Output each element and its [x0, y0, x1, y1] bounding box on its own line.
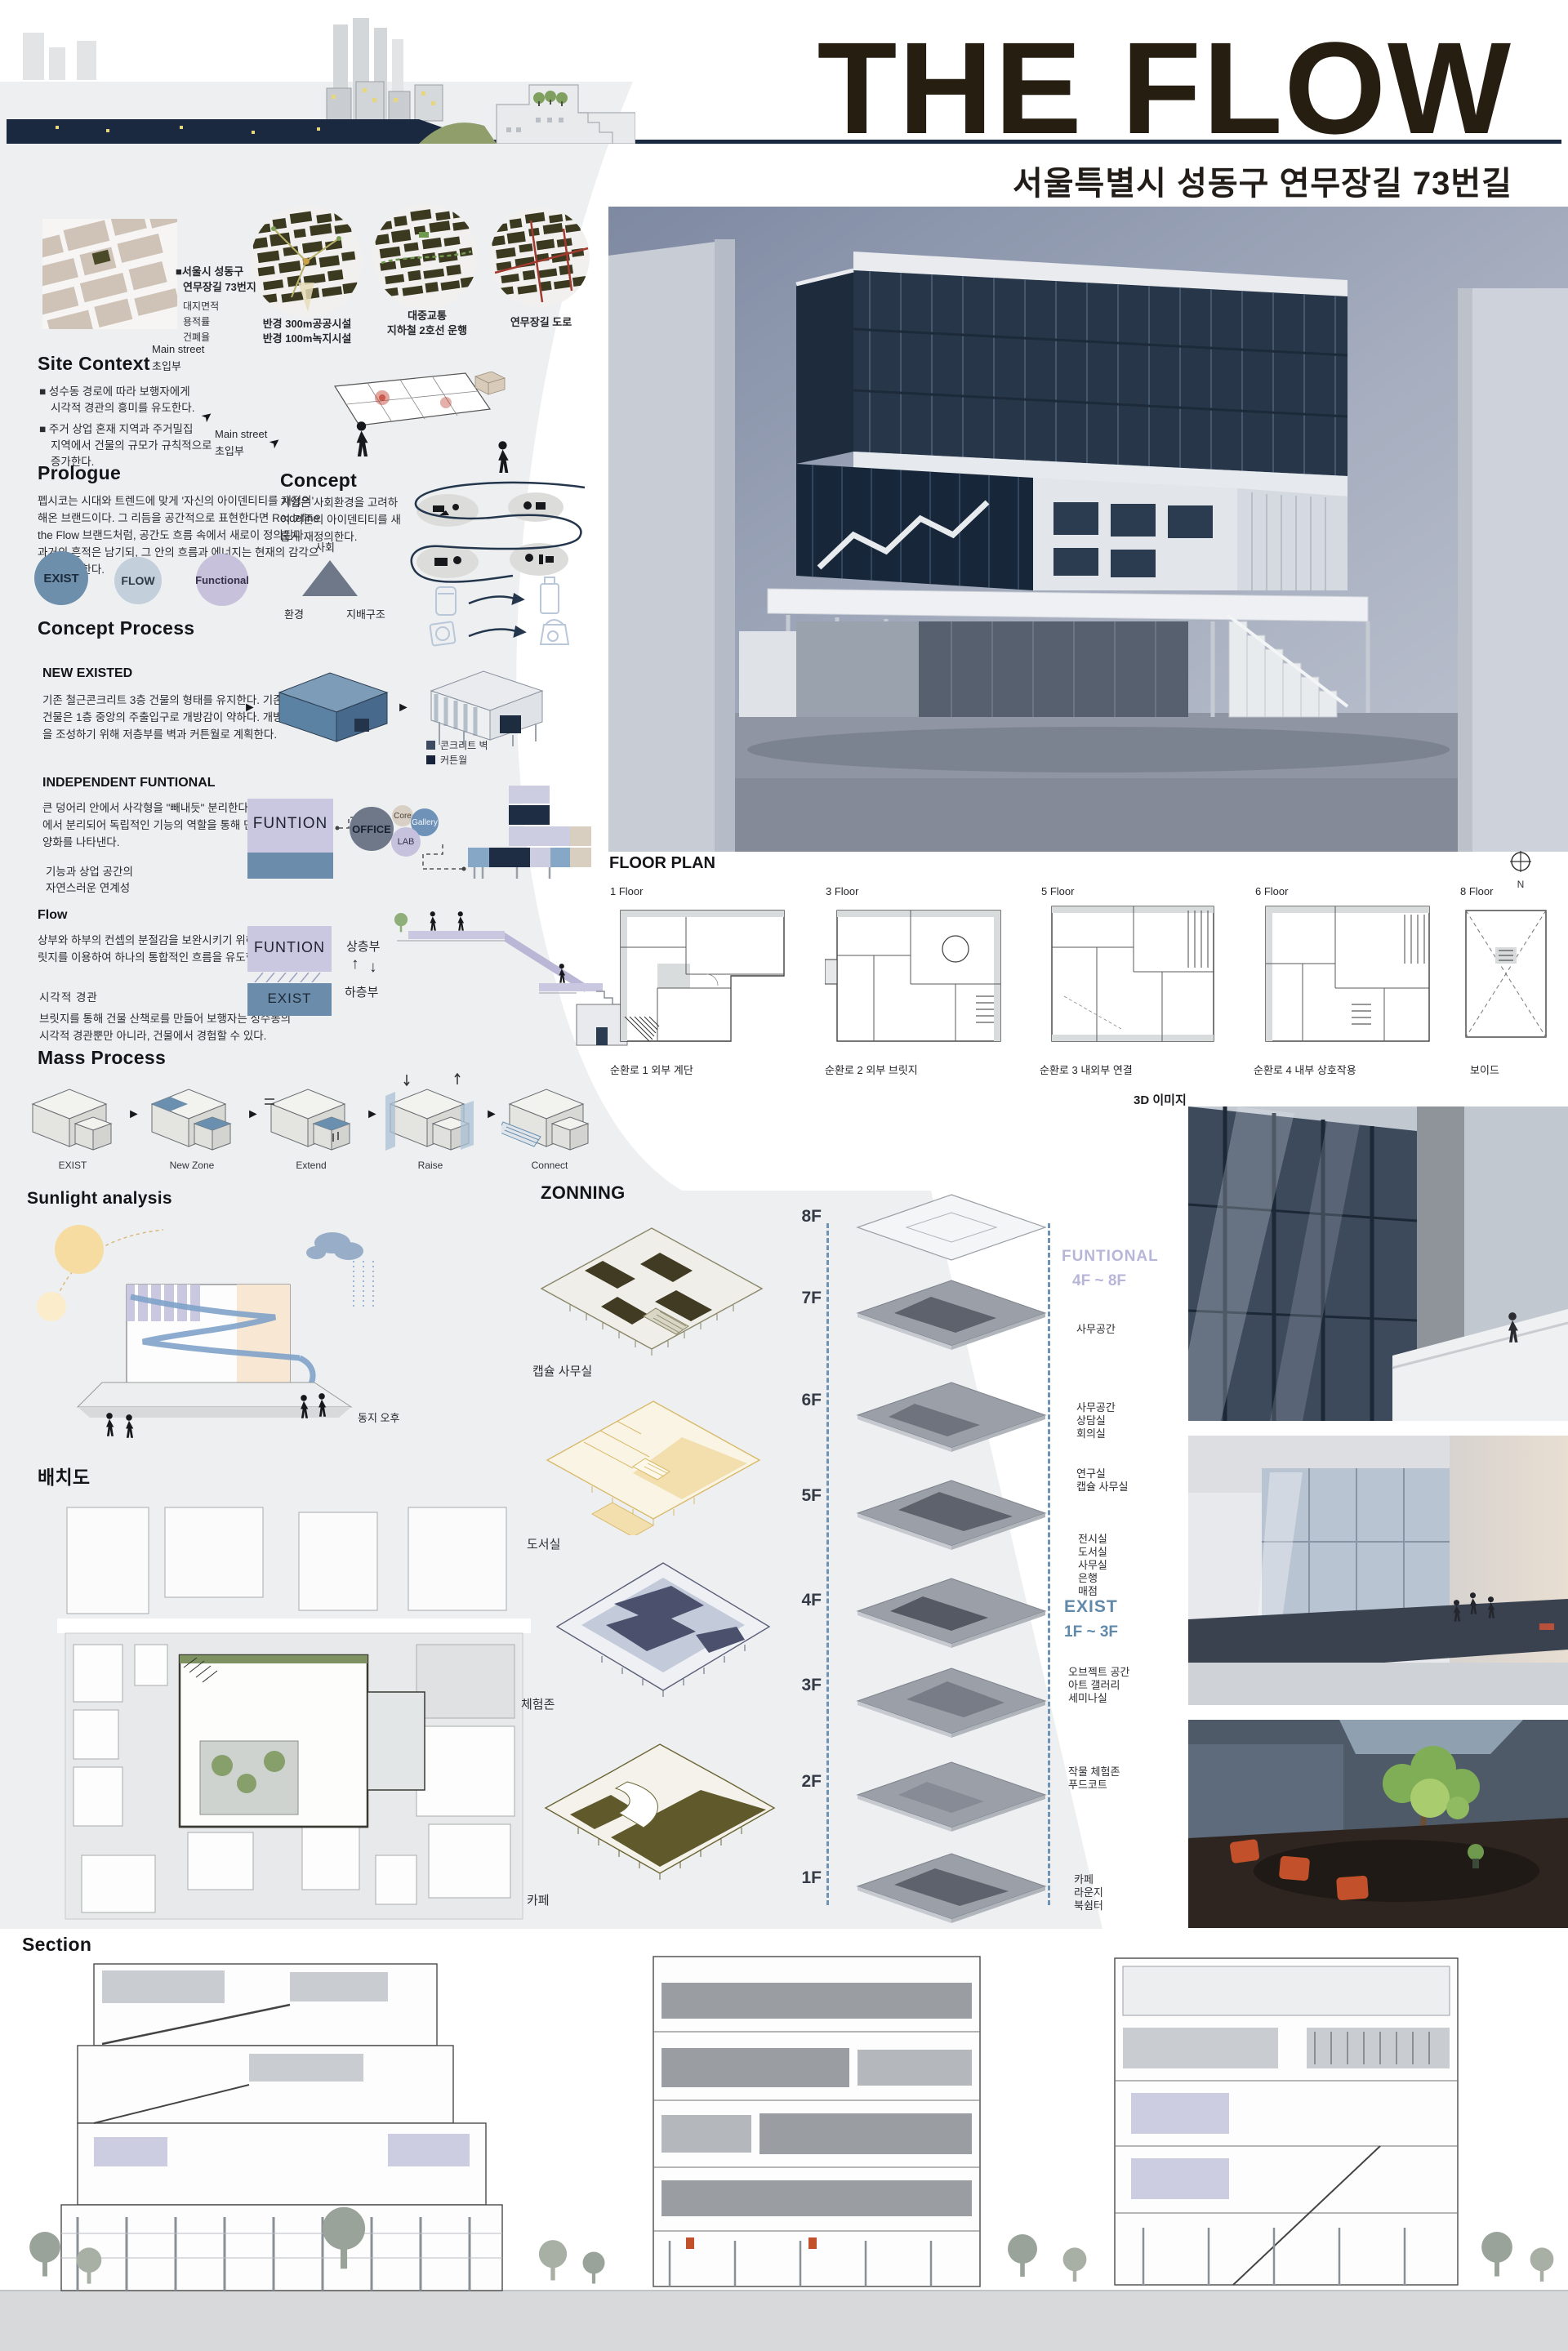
esg-environment-label: 환경: [284, 606, 304, 621]
stack-label-5f: 5F: [786, 1486, 822, 1506]
mass-label-newzone: New Zone: [144, 1160, 240, 1171]
legend-concrete-wall: 콘크리트 벽: [426, 738, 488, 752]
independent-body2-line2: 자연스러운 연계성: [46, 880, 130, 897]
stack-label-6f: 6F: [786, 1391, 822, 1410]
stack-label-1f: 1F: [786, 1868, 822, 1888]
section-drawing-1: [45, 1956, 535, 2292]
independent-funtional-heading: INDEPENDENT FUNTIONAL: [42, 776, 216, 790]
plan-3f-drawing: [825, 898, 1013, 1053]
mass-step-exist: [24, 1071, 121, 1153]
mass-arrow2-icon: ►: [247, 1107, 260, 1122]
street-grid-diagram: [278, 372, 523, 470]
board-subtitle: 서울특별시 성동구 연무장길 73번길: [696, 157, 1512, 204]
flow-exist-box: EXIST: [247, 983, 332, 1016]
main-street2-line1: Main street: [215, 428, 267, 440]
funtion-label: FUNTION: [247, 815, 333, 833]
section-drawing-2: [637, 1950, 996, 2293]
section-heading: Section: [22, 1934, 91, 1956]
existing-building-axon: [263, 658, 394, 746]
process-arrow1-icon: ►: [243, 701, 256, 715]
main-street2-line2: 초입부: [215, 443, 244, 458]
render-facade-image: [1188, 1106, 1568, 1421]
render-cafe-tree-image: [1188, 1720, 1568, 1928]
funtional-range-floors: 4F ~ 8F: [1072, 1272, 1126, 1290]
radius-analysis-map: [249, 204, 363, 318]
funtional-range-title: FUNTIONAL: [1062, 1248, 1159, 1266]
flow-body2: 브릿지를 통해 건물 산책로를 만들어 보행자는 성수동의 시각적 경관뿐만 아…: [39, 1011, 301, 1045]
plan-6f-drawing: [1254, 898, 1441, 1053]
exist-range-title: EXIST: [1064, 1597, 1118, 1617]
stack-guide-line-left: [826, 1223, 829, 1905]
hero-3d-render: [608, 207, 1568, 852]
main-street-label-line1: Main street: [152, 343, 204, 355]
plan-caption-5: 보이드: [1470, 1062, 1499, 1077]
zone-axon-office: [513, 1210, 774, 1365]
flow-funtion-box: FUNTION: [247, 926, 332, 972]
stack-slab-4f: [849, 1572, 1053, 1654]
curtain-wall-swatch: [426, 755, 435, 764]
radius-map-caption: 반경 300m공공시설 반경 100m녹지시설: [242, 317, 372, 345]
stack-slab-1f: [849, 1847, 1053, 1929]
independent-body2-line1: 기능과 상업 공간의: [46, 864, 133, 881]
transit-analysis-map: [372, 203, 479, 310]
funtional-elevation-diagram: [468, 781, 595, 880]
site-address-line2: 연무장길 73번지: [183, 278, 256, 294]
zone-axon-experience: [549, 1553, 777, 1700]
concept-body: 기업은 사회환경을 고려하여 기존의 아이덴티티를 새롭게 재정의한다.: [280, 495, 403, 546]
esg-governance-label: 지배구조: [346, 606, 385, 621]
mass-label-extend: Extend: [263, 1160, 359, 1171]
header-skyline-illustration: [7, 7, 635, 144]
floor-label-1: 1 Floor: [610, 885, 643, 897]
lower-floors-label: 하층부: [345, 983, 378, 1000]
pedestrian2-icon: [495, 441, 513, 477]
mass-step-extend: [263, 1071, 359, 1153]
up-arrow-icon: ↑: [351, 955, 359, 973]
flow-ramp-diagram: [390, 905, 635, 1064]
concept-heading: Concept: [280, 470, 357, 492]
exist-range-floors: 1F ~ 3F: [1064, 1623, 1118, 1641]
pedestrian-icon: [353, 421, 372, 461]
zone-axon-cafe: [537, 1733, 782, 1896]
floorplan-heading: FLOOR PLAN: [609, 854, 715, 873]
north-compass-icon: [1507, 849, 1535, 877]
mass-label-exist: EXIST: [24, 1160, 121, 1171]
road-map-caption: 연무장길 도로: [482, 314, 600, 329]
plan-8f-drawing: [1459, 898, 1553, 1053]
plan-5f-drawing: [1040, 898, 1226, 1053]
floor-label-5: 5 Floor: [1041, 885, 1074, 897]
site-location-map: [42, 219, 177, 329]
funtion-mass-diagram: FUNTION: [247, 799, 333, 879]
concept-process-heading: Concept Process: [38, 617, 194, 639]
transit-map-caption: 대중교통 지하철 2호선 운행: [366, 309, 488, 337]
upper-floors-label: 상층부: [346, 937, 380, 955]
stack-slab-5f: [849, 1474, 1053, 1556]
esg-triangle: [302, 560, 358, 596]
mass-label-connect: Connect: [501, 1160, 598, 1171]
site-address-line1: ■서울시 성동구: [176, 263, 243, 278]
mass-step-raise: [382, 1071, 479, 1153]
gallery-elevation-connector: [418, 841, 469, 875]
new-existed-heading: NEW EXISTED: [42, 666, 132, 681]
board-title: THE FLOW: [696, 23, 1512, 154]
annotation-5f: 전시실도서실사무실은행매점: [1078, 1533, 1107, 1598]
site-metric-1: 대지면적: [183, 299, 219, 313]
annotation-7f: 사무공간상담실회의실: [1076, 1401, 1116, 1440]
annotation-2f: 작물 체험존푸드코트: [1068, 1765, 1120, 1792]
sunlight-diagram: [29, 1207, 380, 1452]
plan-caption-1: 순환로 1 외부 계단: [610, 1062, 693, 1077]
site-context-heading: Site Context: [38, 353, 150, 375]
section-drawing-3: [1102, 1950, 1470, 2293]
plan-1f-drawing: [608, 898, 796, 1053]
section-tree-9: [1529, 2236, 1557, 2293]
zone-label-experience: 체험존: [521, 1695, 555, 1712]
floor-label-8: 8 Floor: [1460, 885, 1493, 897]
section-tree-1: [28, 2215, 64, 2293]
winter-afternoon-label: 동지 오후: [358, 1409, 399, 1425]
presentation-board: THE FLOW 서울특별시 성동구 연무장길 73번길 ■서울시 성동구 연무…: [0, 0, 1568, 2351]
sunlight-heading: Sunlight analysis: [27, 1189, 172, 1209]
plan-caption-4: 순환로 4 내부 상호작용: [1254, 1062, 1356, 1077]
stack-slab-7f: [849, 1274, 1053, 1356]
site-context-bullet2-line2: 지역에서 건물의 규모가 규칙적으로: [51, 438, 212, 455]
mass-arrow1-icon: ►: [127, 1107, 140, 1122]
stack-label-4f: 4F: [786, 1591, 822, 1610]
mass-step-connect: [501, 1071, 598, 1153]
section-tree-6: [1006, 2218, 1040, 2293]
concrete-wall-swatch: [426, 741, 435, 750]
floor-label-6: 6 Floor: [1255, 885, 1288, 897]
mass-step-newzone: [144, 1071, 240, 1153]
siteplan-heading: 배치도: [38, 1462, 90, 1489]
mass-process-heading: Mass Process: [38, 1047, 166, 1069]
north-label: N: [1502, 879, 1539, 890]
annotation-3f: 오브젝트 공간아트 갤러리세미나실: [1068, 1666, 1129, 1705]
zone-label-office: 캡슐 사무실: [532, 1362, 592, 1379]
plan-caption-3: 순환로 3 내외부 연결: [1040, 1062, 1133, 1077]
zone-label-cafe: 카페: [527, 1891, 550, 1908]
lab-circle: LAB: [391, 827, 421, 857]
curtainwall-building-axon: [415, 657, 550, 748]
flow-hatch-joint: [252, 973, 330, 982]
mass-arrow4-icon: ►: [485, 1107, 498, 1122]
plan-caption-2: 순환로 2 외부 브릿지: [825, 1062, 918, 1077]
site-metric-3: 건폐율: [183, 330, 210, 344]
stack-label-8f: 8F: [786, 1207, 822, 1227]
flow-heading: Flow: [38, 908, 67, 923]
stack-label-3f: 3F: [786, 1676, 822, 1695]
section-tree-2: [75, 2231, 105, 2295]
annotation-1f: 카페라운지북쉼터: [1074, 1873, 1103, 1912]
section-tree-8: [1480, 2215, 1516, 2293]
zone-label-library: 도서실: [527, 1535, 560, 1552]
mass-arrow3-icon: ►: [366, 1107, 379, 1122]
section-tree-4: [537, 2226, 570, 2293]
stack-slab-2f: [849, 1756, 1053, 1837]
flow-concept-circle: FLOW: [114, 557, 162, 604]
prologue-heading: Prologue: [38, 462, 121, 484]
site-context-bullet2-line1: ■ 주거 상업 혼재 지역과 주거밀집: [39, 421, 193, 439]
flow-subheading: 시각적 경관: [39, 990, 98, 1007]
exist-concept-circle: EXIST: [34, 551, 88, 605]
zone-axon-library: [535, 1388, 772, 1535]
stack-slab-6f: [849, 1376, 1053, 1458]
down-arrow-icon: ↓: [369, 959, 377, 977]
site-context-bullet1-line2: 시각적 경관의 흥미를 유도한다.: [51, 400, 194, 417]
process-arrow2-icon: ►: [397, 701, 410, 715]
stack-label-7f: 7F: [786, 1289, 822, 1308]
section-tree-5: [581, 2241, 608, 2293]
main-street-label-line2: 초입부: [152, 358, 181, 373]
site-metric-2: 용적률: [183, 314, 210, 328]
esg-flow-doodle: [390, 476, 595, 648]
functional-concept-circle: Functional: [196, 554, 248, 606]
zoning-heading: ZONNING: [541, 1182, 626, 1204]
legend-curtain-wall: 커튼월: [426, 753, 467, 767]
stack-label-2f: 2F: [786, 1772, 822, 1792]
stack-slab-3f: [849, 1662, 1053, 1743]
esg-society-label: 사회: [315, 539, 335, 554]
section-tree-7: [1062, 2236, 1089, 2293]
site-context-bullet1-line1: ■ 성수동 경로에 따라 보행자에게: [39, 384, 190, 401]
new-existed-body: 기존 철근콘크리트 3층 건물의 형태를 유지한다. 기존 건물은 1층 중앙의…: [42, 692, 296, 744]
road-analysis-map: [488, 206, 591, 309]
section-tree-3: [320, 2179, 369, 2293]
annotation-8f: 사무공간: [1076, 1323, 1116, 1336]
renders-heading: 3D 이미지: [1134, 1091, 1187, 1108]
stack-slab-8f: [849, 1188, 1053, 1270]
annotation-6f: 연구실캡슐 사무실: [1076, 1467, 1128, 1494]
floor-label-3: 3 Floor: [826, 885, 858, 897]
mass-label-raise: Raise: [382, 1160, 479, 1171]
site-plan-drawing: [57, 1504, 531, 1929]
render-interior-image: [1188, 1436, 1568, 1705]
office-circle: OFFICE: [350, 807, 394, 851]
